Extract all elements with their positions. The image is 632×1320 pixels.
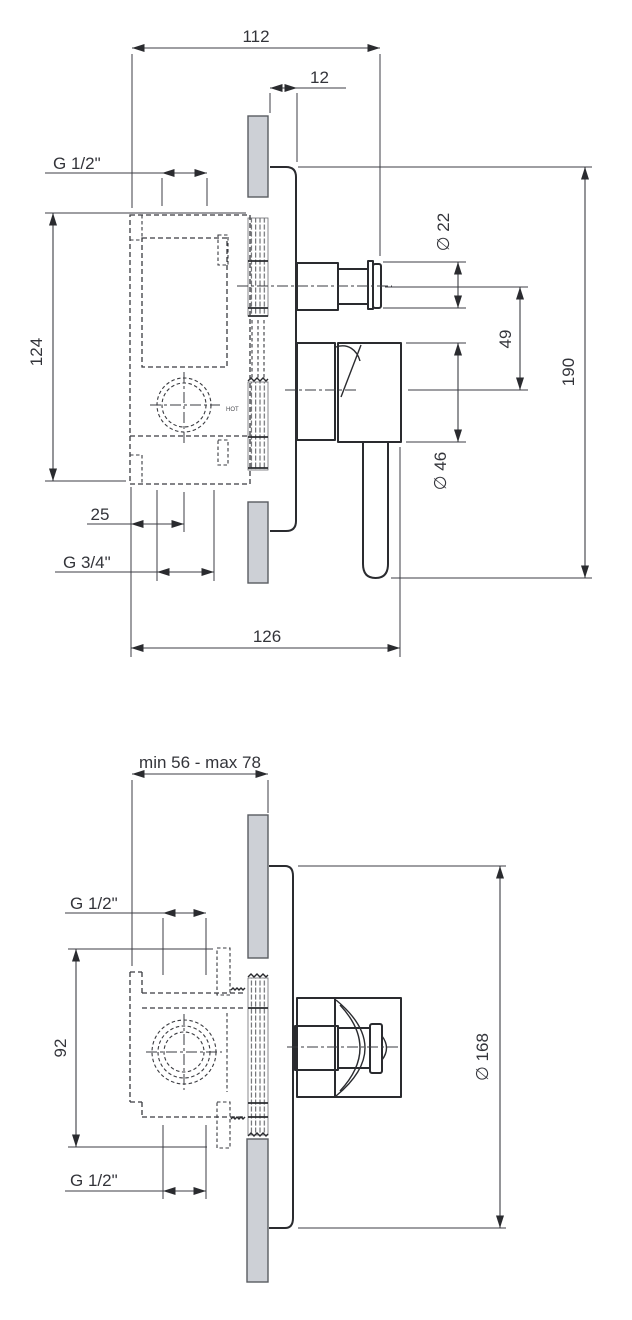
drawing-svg: HOT 112 <box>0 0 632 1320</box>
dim-92-label: 92 <box>51 1039 70 1058</box>
handle-end-view <box>287 998 401 1097</box>
dim-49-label: 49 <box>496 330 515 349</box>
thread-g12-top-label: G 1/2" <box>53 154 101 173</box>
dim-g12-lower: G 1/2" <box>65 1125 206 1199</box>
dim-124: 124 <box>27 213 246 481</box>
dim-g34-bottom: G 3/4" <box>55 490 214 581</box>
wall-section <box>248 116 268 583</box>
dim-112-label: 112 <box>242 27 269 46</box>
handle-lever <box>285 343 401 578</box>
top-drawing-side-section: HOT 112 <box>27 27 592 657</box>
thread-g34-label: G 3/4" <box>63 553 111 572</box>
valve-body-concealed: HOT <box>130 215 250 484</box>
dim-190-label: 190 <box>559 358 578 386</box>
dim-depth-range-label: min 56 - max 78 <box>139 753 261 772</box>
dia-46-label: ∅ 46 <box>431 452 450 490</box>
dia-22-label: ∅ 22 <box>434 213 453 251</box>
dia-168-label: ∅ 168 <box>473 1033 492 1081</box>
dim-dia22: ∅ 22 <box>383 213 466 308</box>
thread-g12-lower-label: G 1/2" <box>70 1171 118 1190</box>
dim-g12-upper: G 1/2" <box>65 894 206 975</box>
dim-dia46: ∅ 46 <box>406 343 466 490</box>
valve-body-concealed-bottom <box>130 948 246 1148</box>
dim-12: 12 <box>270 68 346 162</box>
dim-124-label: 124 <box>27 338 46 366</box>
dim-126-label: 126 <box>253 627 281 646</box>
hot-marking-label: HOT <box>226 407 239 413</box>
bottom-drawing-depth-view: min 56 - max 78 G 1/2" 92 G 1/2" <box>51 753 506 1282</box>
technical-drawing-page: HOT 112 <box>0 0 632 1320</box>
dim-25-label: 25 <box>91 505 110 524</box>
faceplate-profile <box>270 167 296 531</box>
dim-12-label: 12 <box>310 68 329 87</box>
thread-g12-upper-label: G 1/2" <box>70 894 118 913</box>
dim-25: 25 <box>87 492 184 532</box>
dim-49: 49 <box>385 287 528 390</box>
wall-section-bottom <box>247 815 268 1282</box>
dim-g12-top: G 1/2" <box>45 154 207 206</box>
dim-92: 92 <box>51 949 213 1147</box>
